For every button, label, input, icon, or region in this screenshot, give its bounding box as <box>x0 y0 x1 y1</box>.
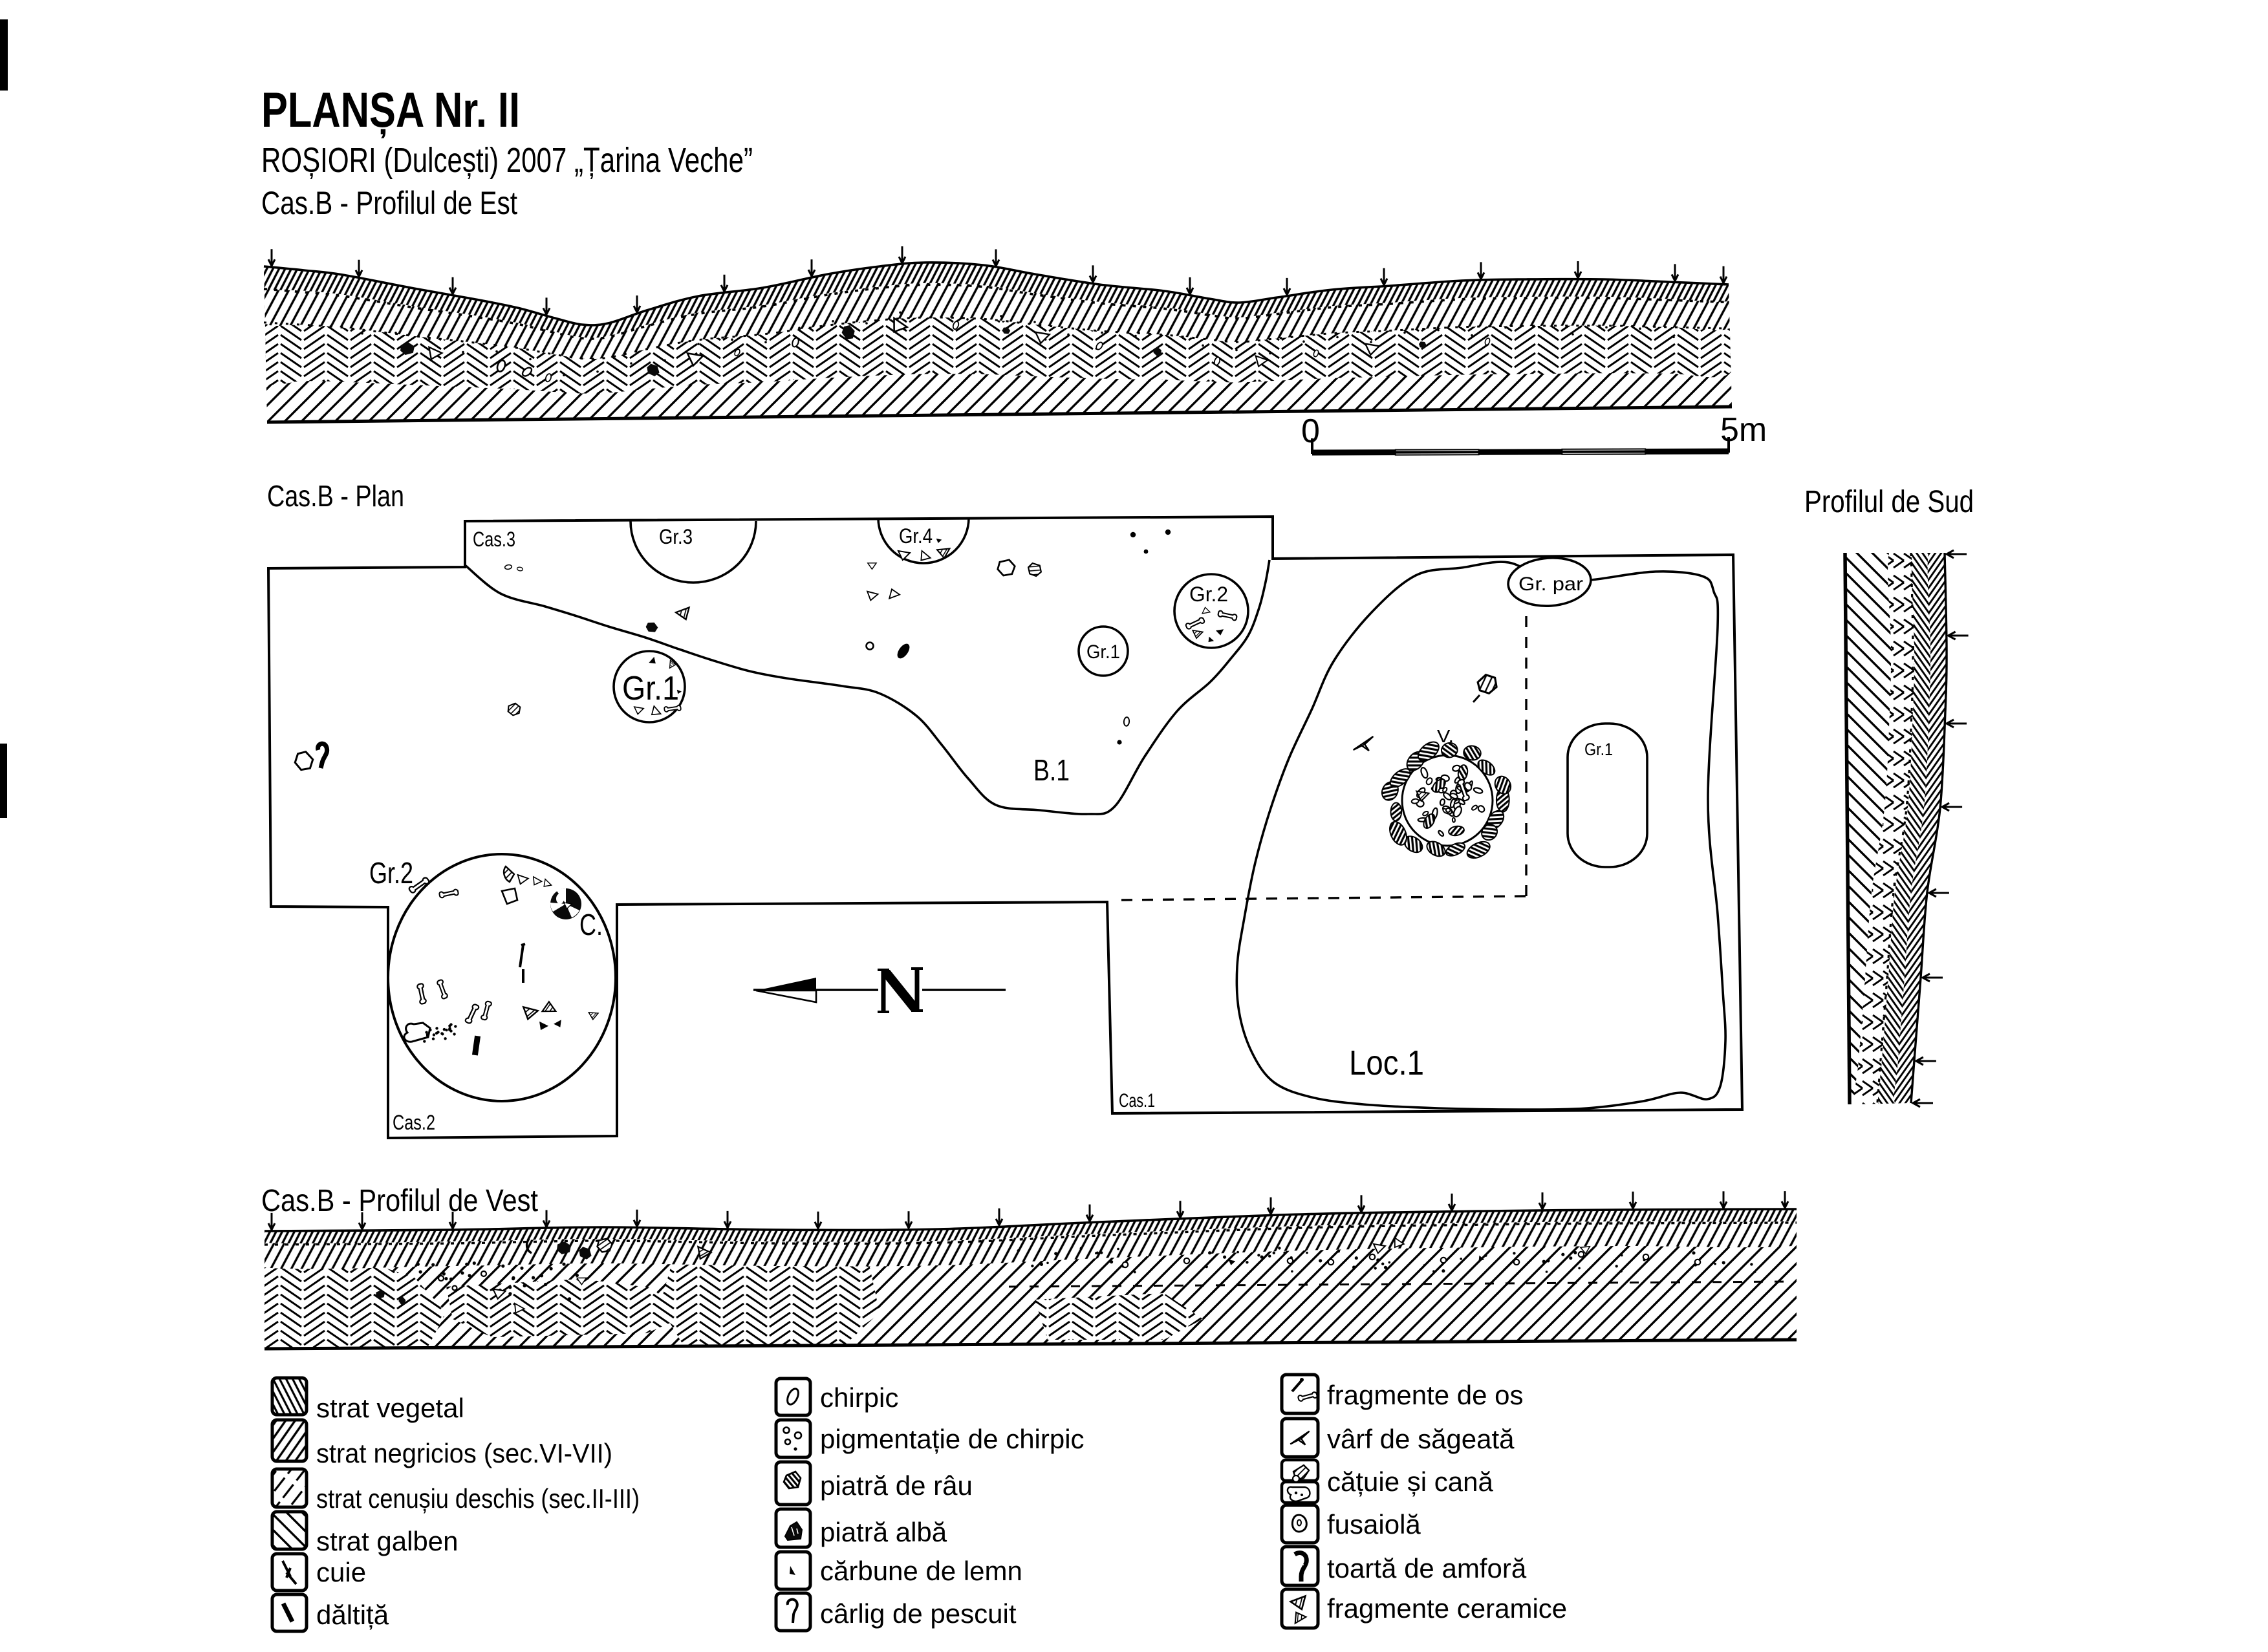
svg-text:Cas.B - Profilul de Est: Cas.B - Profilul de Est <box>261 185 517 221</box>
svg-text:cârlig de pescuit: cârlig de pescuit <box>820 1598 1017 1629</box>
svg-text:Gr.3: Gr.3 <box>659 525 693 548</box>
svg-text:C.: C. <box>579 908 603 941</box>
svg-text:strat negricios (sec.VI-VII): strat negricios (sec.VI-VII) <box>316 1438 612 1468</box>
svg-text:Gr.1: Gr.1 <box>1086 641 1120 663</box>
svg-text:fusaiolă: fusaiolă <box>1327 1509 1421 1539</box>
svg-text:B.1: B.1 <box>1033 753 1070 787</box>
svg-text:Cas.1: Cas.1 <box>1119 1090 1155 1111</box>
svg-text:cărbune de lemn: cărbune de lemn <box>820 1556 1022 1586</box>
svg-text:Gr.1: Gr.1 <box>622 670 679 707</box>
svg-text:Cas.B - Profilul de Vest: Cas.B - Profilul de Vest <box>261 1184 538 1218</box>
svg-text:Profilul de Sud: Profilul de Sud <box>1804 485 1974 519</box>
svg-text:strat galben: strat galben <box>316 1526 458 1556</box>
svg-text:Loc.1: Loc.1 <box>1349 1044 1424 1082</box>
svg-text:Gr.1: Gr.1 <box>1584 740 1613 759</box>
svg-text:piatră de râu: piatră de râu <box>820 1470 973 1501</box>
svg-text:fragmente de os: fragmente de os <box>1327 1380 1524 1410</box>
svg-text:cățuie și cană: cățuie și cană <box>1327 1466 1493 1497</box>
svg-text:fragmente ceramice: fragmente ceramice <box>1327 1593 1567 1624</box>
svg-text:PLANȘA Nr. II: PLANȘA Nr. II <box>261 83 520 138</box>
svg-text:Gr.4: Gr.4 <box>899 524 933 548</box>
svg-text:Gr. par: Gr. par <box>1518 574 1583 595</box>
svg-text:Gr.2: Gr.2 <box>1189 583 1228 606</box>
svg-text:Cas.3: Cas.3 <box>473 528 515 551</box>
svg-text:chirpic: chirpic <box>820 1382 898 1413</box>
svg-text:toartă de amforă: toartă de amforă <box>1327 1553 1527 1583</box>
svg-text:strat cenușiu deschis (sec.II-: strat cenușiu deschis (sec.II-III) <box>316 1483 640 1514</box>
svg-text:pigmentație de chirpic: pigmentație de chirpic <box>820 1424 1085 1454</box>
svg-text:dăltiță: dăltiță <box>316 1600 389 1630</box>
svg-text:0: 0 <box>1301 413 1320 450</box>
svg-text:vârf de săgeată: vârf de săgeată <box>1327 1424 1515 1454</box>
svg-text:strat vegetal: strat vegetal <box>316 1393 464 1423</box>
svg-text:Cas.2: Cas.2 <box>393 1111 435 1134</box>
svg-text:ROȘIORI (Dulcești) 2007 „Țar: ROȘIORI (Dulcești) 2007 „Țarina Veche” <box>261 141 753 180</box>
svg-text:piatră albă: piatră albă <box>820 1517 947 1547</box>
svg-text:Gr.2: Gr.2 <box>369 856 413 890</box>
svg-text:cuie: cuie <box>316 1557 366 1587</box>
svg-text:5m: 5m <box>1720 411 1767 449</box>
svg-text:Cas.B - Plan: Cas.B - Plan <box>267 479 404 513</box>
